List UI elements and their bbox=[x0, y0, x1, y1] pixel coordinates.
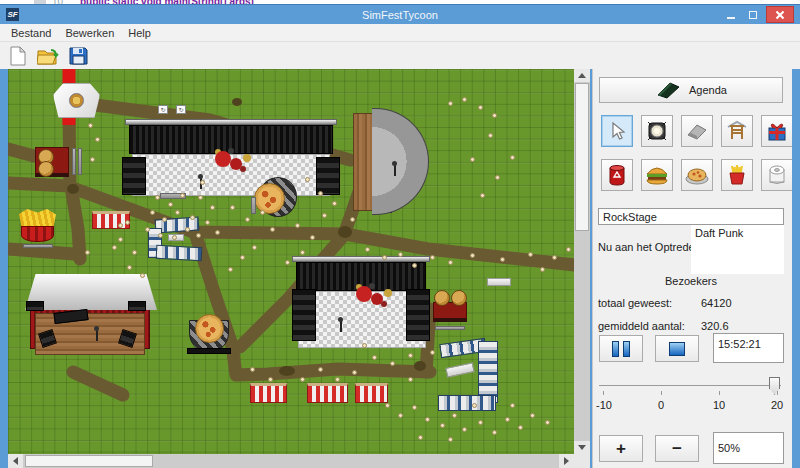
person-dot bbox=[196, 233, 201, 238]
bench bbox=[251, 197, 256, 214]
titlebar[interactable]: SF SimFestTycoon bbox=[0, 5, 800, 24]
pizza bbox=[254, 183, 285, 214]
burger bbox=[434, 290, 450, 306]
tool-fries[interactable] bbox=[721, 159, 753, 191]
person-dot bbox=[132, 250, 137, 255]
person-dot bbox=[552, 255, 557, 260]
person-dot bbox=[300, 377, 305, 382]
person-dot bbox=[228, 267, 233, 272]
person-dot bbox=[90, 157, 95, 162]
mic-stand bbox=[96, 329, 98, 341]
scroll-right-icon bbox=[564, 457, 569, 465]
agenda-button[interactable]: Agenda bbox=[599, 77, 783, 103]
slider-label-min: -10 bbox=[596, 399, 612, 411]
now-playing-panel: Daft Punk bbox=[691, 225, 784, 274]
person-dot bbox=[448, 101, 453, 106]
stage-rockstage[interactable]: ↻ ↻ bbox=[120, 105, 340, 197]
person-dot bbox=[260, 210, 265, 215]
person-dot bbox=[470, 157, 475, 162]
stop-button[interactable] bbox=[655, 335, 699, 362]
person-dot bbox=[205, 220, 210, 225]
speaker bbox=[128, 301, 146, 311]
slider-tick bbox=[661, 391, 662, 395]
burger bbox=[451, 290, 467, 306]
fries-stand[interactable] bbox=[18, 207, 58, 249]
person-dot bbox=[452, 413, 457, 418]
toilet-roll-icon bbox=[767, 164, 787, 186]
person-dot bbox=[240, 255, 245, 260]
person-dot bbox=[245, 217, 250, 222]
person-dot bbox=[180, 193, 185, 198]
menu-bewerken[interactable]: Bewerken bbox=[58, 26, 121, 40]
minimize-icon bbox=[727, 17, 735, 19]
stage-center[interactable] bbox=[288, 254, 434, 352]
scroll-up-button[interactable] bbox=[574, 69, 590, 82]
bench bbox=[72, 148, 76, 175]
horizontal-scroll-thumb[interactable] bbox=[25, 455, 153, 467]
trash-can-icon bbox=[607, 164, 627, 186]
stop-icon bbox=[669, 342, 685, 356]
total-visitors-value: 64120 bbox=[701, 297, 732, 309]
menubar: Bestand Bewerken Help bbox=[0, 24, 800, 42]
stage-light-icon bbox=[646, 120, 668, 142]
burger-stand[interactable] bbox=[432, 288, 470, 330]
speaker bbox=[26, 301, 44, 311]
pause-icon bbox=[612, 341, 630, 357]
person-dot bbox=[335, 377, 340, 382]
mic-stand bbox=[340, 320, 342, 332]
person-dot bbox=[295, 223, 300, 228]
fries-basket bbox=[21, 226, 54, 242]
person-dot bbox=[372, 355, 377, 360]
stage-flag-icon: ↻ bbox=[176, 105, 186, 114]
person-dot bbox=[140, 273, 145, 278]
speaker-stack bbox=[406, 289, 430, 341]
slider-label-max: 20 bbox=[771, 399, 783, 411]
tool-select[interactable] bbox=[601, 115, 633, 147]
agenda-label: Agenda bbox=[689, 84, 727, 96]
scrollbar-corner bbox=[574, 454, 590, 468]
person-dot bbox=[252, 245, 257, 250]
person-dot bbox=[462, 427, 467, 432]
person-dot bbox=[530, 413, 535, 418]
map-horizontal-scrollbar[interactable] bbox=[8, 454, 574, 468]
market-stall[interactable] bbox=[355, 383, 388, 403]
person-dot bbox=[270, 227, 275, 232]
hamburger-icon bbox=[645, 165, 669, 185]
map-canvas[interactable]: ↻ ↻ bbox=[8, 69, 574, 454]
pizza bbox=[195, 314, 224, 343]
person-dot bbox=[430, 350, 435, 355]
person-dot bbox=[145, 227, 150, 232]
person-dot bbox=[412, 263, 417, 268]
person-dot bbox=[528, 252, 533, 257]
slider-tick bbox=[719, 391, 720, 395]
zoom-out-button[interactable]: − bbox=[655, 435, 699, 462]
tool-road[interactable] bbox=[681, 115, 713, 147]
clock-display: 15:52:21 bbox=[713, 333, 784, 363]
person-dot bbox=[198, 195, 203, 200]
market-stall[interactable] bbox=[92, 211, 130, 229]
window-title: SimFestTycoon bbox=[0, 9, 800, 21]
person-dot bbox=[172, 235, 177, 240]
person-dot bbox=[85, 250, 90, 255]
open-folder-icon bbox=[37, 46, 59, 66]
slider-tick bbox=[603, 391, 604, 395]
map-vertical-scrollbar[interactable] bbox=[574, 69, 590, 454]
stage-curtain bbox=[129, 125, 333, 154]
tool-stage-light[interactable] bbox=[641, 115, 673, 147]
person-dot bbox=[350, 217, 355, 222]
gift-icon bbox=[766, 120, 788, 142]
bench bbox=[187, 348, 231, 354]
speed-slider-track[interactable] bbox=[599, 385, 781, 386]
person-dot bbox=[318, 191, 323, 196]
person-dot bbox=[285, 260, 290, 265]
sidebar: Agenda bbox=[592, 69, 792, 468]
new-file-icon bbox=[9, 46, 27, 66]
person-dot bbox=[168, 202, 173, 207]
toolbar bbox=[0, 42, 800, 69]
now-playing-value: Daft Punk bbox=[695, 227, 743, 239]
scroll-left-icon bbox=[13, 457, 18, 465]
pizza-icon bbox=[685, 165, 709, 185]
burger-stand[interactable] bbox=[35, 147, 83, 177]
window-border bbox=[0, 69, 8, 468]
slider-tick bbox=[777, 391, 778, 395]
toilet-row bbox=[156, 245, 203, 261]
agenda-book-icon bbox=[655, 81, 681, 99]
person-dot bbox=[300, 250, 305, 255]
scroll-down-icon bbox=[578, 445, 586, 450]
stage-floor bbox=[132, 154, 330, 196]
person-dot bbox=[210, 205, 215, 210]
road-icon bbox=[686, 122, 708, 140]
toilet-row bbox=[438, 395, 496, 411]
person-dot bbox=[127, 265, 132, 270]
person-dot bbox=[488, 133, 493, 138]
person-dot bbox=[190, 215, 195, 220]
tool-hamburger[interactable] bbox=[641, 159, 673, 191]
select-cursor-icon bbox=[608, 121, 626, 141]
tool-gift[interactable] bbox=[761, 115, 793, 147]
screen: 10 public static void main(String[] args… bbox=[0, 0, 800, 468]
person-dot bbox=[412, 405, 417, 410]
person-dot bbox=[318, 367, 323, 372]
new-file-button[interactable] bbox=[6, 45, 30, 67]
scroll-down-button[interactable] bbox=[574, 441, 590, 454]
toilet-row bbox=[478, 341, 498, 403]
person-dot bbox=[425, 417, 430, 422]
tool-toilet[interactable] bbox=[761, 159, 793, 191]
person-dot bbox=[185, 227, 190, 232]
close-icon bbox=[776, 11, 784, 19]
scroll-left-button[interactable] bbox=[8, 454, 23, 468]
person-dot bbox=[398, 413, 403, 418]
person-dot bbox=[462, 97, 467, 102]
maximize-button[interactable] bbox=[744, 7, 762, 22]
total-visitors-label: totaal geweest: bbox=[598, 297, 672, 309]
person-dot bbox=[88, 123, 93, 128]
drum-kit bbox=[356, 286, 372, 302]
minimize-button[interactable] bbox=[722, 7, 740, 22]
menu-bestand[interactable]: Bestand bbox=[4, 26, 58, 40]
person-dot bbox=[408, 353, 413, 358]
person-dot bbox=[150, 210, 155, 215]
bench bbox=[435, 326, 465, 330]
visitors-header: Bezoekers bbox=[593, 275, 789, 287]
person-dot bbox=[495, 175, 500, 180]
average-visitors-value: 320.6 bbox=[701, 320, 729, 332]
person-dot bbox=[268, 377, 273, 382]
average-visitors-label: gemiddeld aantal: bbox=[598, 320, 685, 332]
person-dot bbox=[385, 403, 390, 408]
tool-stage[interactable] bbox=[721, 115, 753, 147]
person-dot bbox=[566, 247, 571, 252]
person-dot bbox=[545, 420, 550, 425]
vertical-scroll-thumb[interactable] bbox=[575, 83, 589, 231]
person-dot bbox=[492, 430, 497, 435]
person-dot bbox=[448, 437, 453, 442]
market-stall[interactable] bbox=[250, 383, 287, 403]
person-dot bbox=[365, 247, 370, 252]
person-dot bbox=[510, 403, 515, 408]
person-dot bbox=[430, 255, 435, 260]
person-dot bbox=[112, 245, 117, 250]
slider-label-0: 0 bbox=[658, 399, 664, 411]
scroll-right-button[interactable] bbox=[559, 454, 574, 468]
person-dot bbox=[322, 213, 327, 218]
person-dot bbox=[440, 423, 445, 428]
person-dot bbox=[200, 180, 205, 185]
save-button[interactable] bbox=[66, 45, 90, 67]
main-area: ↻ ↻ bbox=[0, 69, 800, 468]
person-dot bbox=[472, 403, 477, 408]
person-dot bbox=[505, 417, 510, 422]
toilet-block[interactable] bbox=[436, 337, 504, 413]
drum-kit bbox=[215, 151, 231, 167]
open-file-button[interactable] bbox=[36, 45, 60, 67]
save-floppy-icon bbox=[69, 46, 88, 65]
person-dot bbox=[398, 252, 403, 257]
pizza-stand[interactable] bbox=[186, 312, 232, 356]
tool-pizza[interactable] bbox=[681, 159, 713, 191]
person-dot bbox=[500, 257, 505, 262]
pause-button[interactable] bbox=[599, 335, 643, 362]
person-dot bbox=[118, 237, 123, 242]
fries-icon bbox=[727, 164, 747, 186]
person-dot bbox=[448, 260, 453, 265]
bench bbox=[445, 362, 474, 378]
person-dot bbox=[95, 137, 100, 142]
person-dot bbox=[390, 361, 395, 366]
bench bbox=[78, 148, 82, 175]
stage-deck bbox=[353, 113, 373, 211]
person-dot bbox=[408, 377, 413, 382]
person-dot bbox=[310, 235, 315, 240]
person-dot bbox=[155, 195, 160, 200]
maximize-icon bbox=[749, 11, 757, 19]
person-dot bbox=[470, 253, 475, 258]
person-dot bbox=[418, 435, 423, 440]
toilet-block[interactable] bbox=[146, 216, 202, 264]
bench bbox=[487, 278, 511, 286]
speaker-stack bbox=[316, 157, 340, 195]
person-dot bbox=[362, 343, 367, 348]
zoom-level-display: 50% bbox=[713, 432, 784, 464]
market-stall[interactable] bbox=[307, 383, 348, 403]
close-button[interactable] bbox=[766, 6, 794, 23]
amphitheater-floor bbox=[372, 108, 429, 215]
stage-flag-icon: ↻ bbox=[158, 105, 168, 114]
person-dot bbox=[215, 230, 220, 235]
person-dot bbox=[478, 420, 483, 425]
speaker-stack bbox=[292, 289, 316, 341]
speed-slider-thumb[interactable] bbox=[769, 377, 780, 395]
person-dot bbox=[382, 255, 387, 260]
person-dot bbox=[492, 113, 497, 118]
burger bbox=[38, 161, 54, 177]
stage-amphitheater[interactable] bbox=[348, 108, 438, 218]
person-dot bbox=[478, 105, 483, 110]
performer bbox=[394, 164, 396, 176]
person-dot bbox=[510, 155, 515, 160]
person-dot bbox=[118, 223, 123, 228]
person-dot bbox=[158, 233, 163, 238]
tool-trash[interactable] bbox=[601, 159, 633, 191]
person-dot bbox=[518, 425, 523, 430]
stage-name-input[interactable] bbox=[598, 208, 784, 225]
person-dot bbox=[125, 220, 130, 225]
person-dot bbox=[352, 370, 357, 375]
person-dot bbox=[162, 217, 167, 222]
person-dot bbox=[332, 201, 337, 206]
person-dot bbox=[230, 205, 235, 210]
speaker-stack bbox=[122, 157, 146, 195]
scroll-up-icon bbox=[578, 73, 586, 78]
person-dot bbox=[480, 193, 485, 198]
window-border bbox=[792, 69, 800, 468]
menu-help[interactable]: Help bbox=[121, 26, 158, 40]
person-dot bbox=[175, 210, 180, 215]
bench bbox=[23, 244, 53, 248]
person-dot bbox=[250, 367, 255, 372]
app-window: SF SimFestTycoon Bestand Bewerken Help bbox=[0, 5, 800, 468]
stage-scaffold-icon bbox=[726, 120, 748, 142]
tent-burger-logo bbox=[69, 93, 84, 108]
now-playing-label: Nu aan het Optreden: bbox=[598, 241, 704, 253]
stage-acoustic[interactable] bbox=[22, 273, 162, 357]
person-dot bbox=[540, 267, 545, 272]
zoom-in-button[interactable]: + bbox=[599, 435, 643, 462]
slider-label-10: 10 bbox=[713, 399, 725, 411]
person-dot bbox=[305, 177, 310, 182]
